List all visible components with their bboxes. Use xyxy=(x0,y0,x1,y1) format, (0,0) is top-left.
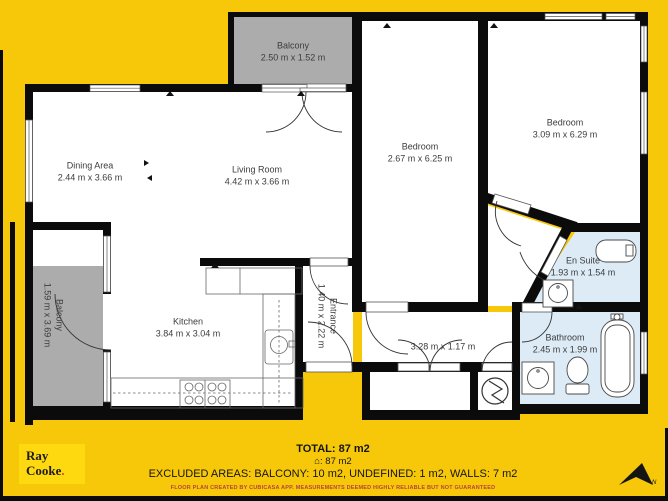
logo-line2: Cooke xyxy=(26,463,61,478)
total-area-text: TOTAL: 87 m2 xyxy=(83,443,583,456)
room-area-bedroom-1 xyxy=(362,21,478,304)
logo-line1: Ray xyxy=(26,448,48,463)
floor-plan-drawing xyxy=(0,0,668,501)
north-arrow-icon xyxy=(619,463,653,485)
utility-fixtures xyxy=(482,378,508,404)
page-border-bottom xyxy=(0,496,668,501)
boiler-icon xyxy=(482,378,508,404)
sliding-door xyxy=(262,84,346,92)
ensuite-sink-icon xyxy=(543,280,573,307)
room-area-balcony-top xyxy=(233,17,352,84)
ray-cooke-logo: Ray Cooke. xyxy=(19,444,85,484)
room-area-closet xyxy=(370,372,470,410)
room-area-kitchen xyxy=(111,266,303,408)
page-border-left xyxy=(0,50,3,501)
footer: TOTAL: 87 m2 ⌂: 87 m2 EXCLUDED AREAS: BA… xyxy=(83,443,583,491)
area-line-text: ⌂: 87 m2 xyxy=(83,456,583,468)
shower-tray-icon xyxy=(596,240,636,262)
logo-dot: . xyxy=(61,463,64,478)
balcony-outer-line xyxy=(10,222,15,422)
bathroom-sink-icon xyxy=(522,362,554,394)
floor-plan-canvas: Balcony2.50 m x 1.52 m Dining Area2.44 m… xyxy=(0,0,668,501)
bathtub-icon xyxy=(601,314,634,397)
room-area-bedroom-2 xyxy=(488,21,640,224)
excluded-areas-text: EXCLUDED AREAS: BALCONY: 10 m2, UNDEFINE… xyxy=(83,468,583,481)
room-area-entrance xyxy=(303,266,353,366)
north-label: N xyxy=(652,480,656,486)
room-area-living-dining xyxy=(33,92,353,266)
room-area-hallway xyxy=(362,312,512,362)
toilet-icon xyxy=(566,357,589,394)
disclaimer-text: FLOOR PLAN CREATED BY CUBICASA APP. MEAS… xyxy=(83,485,583,491)
